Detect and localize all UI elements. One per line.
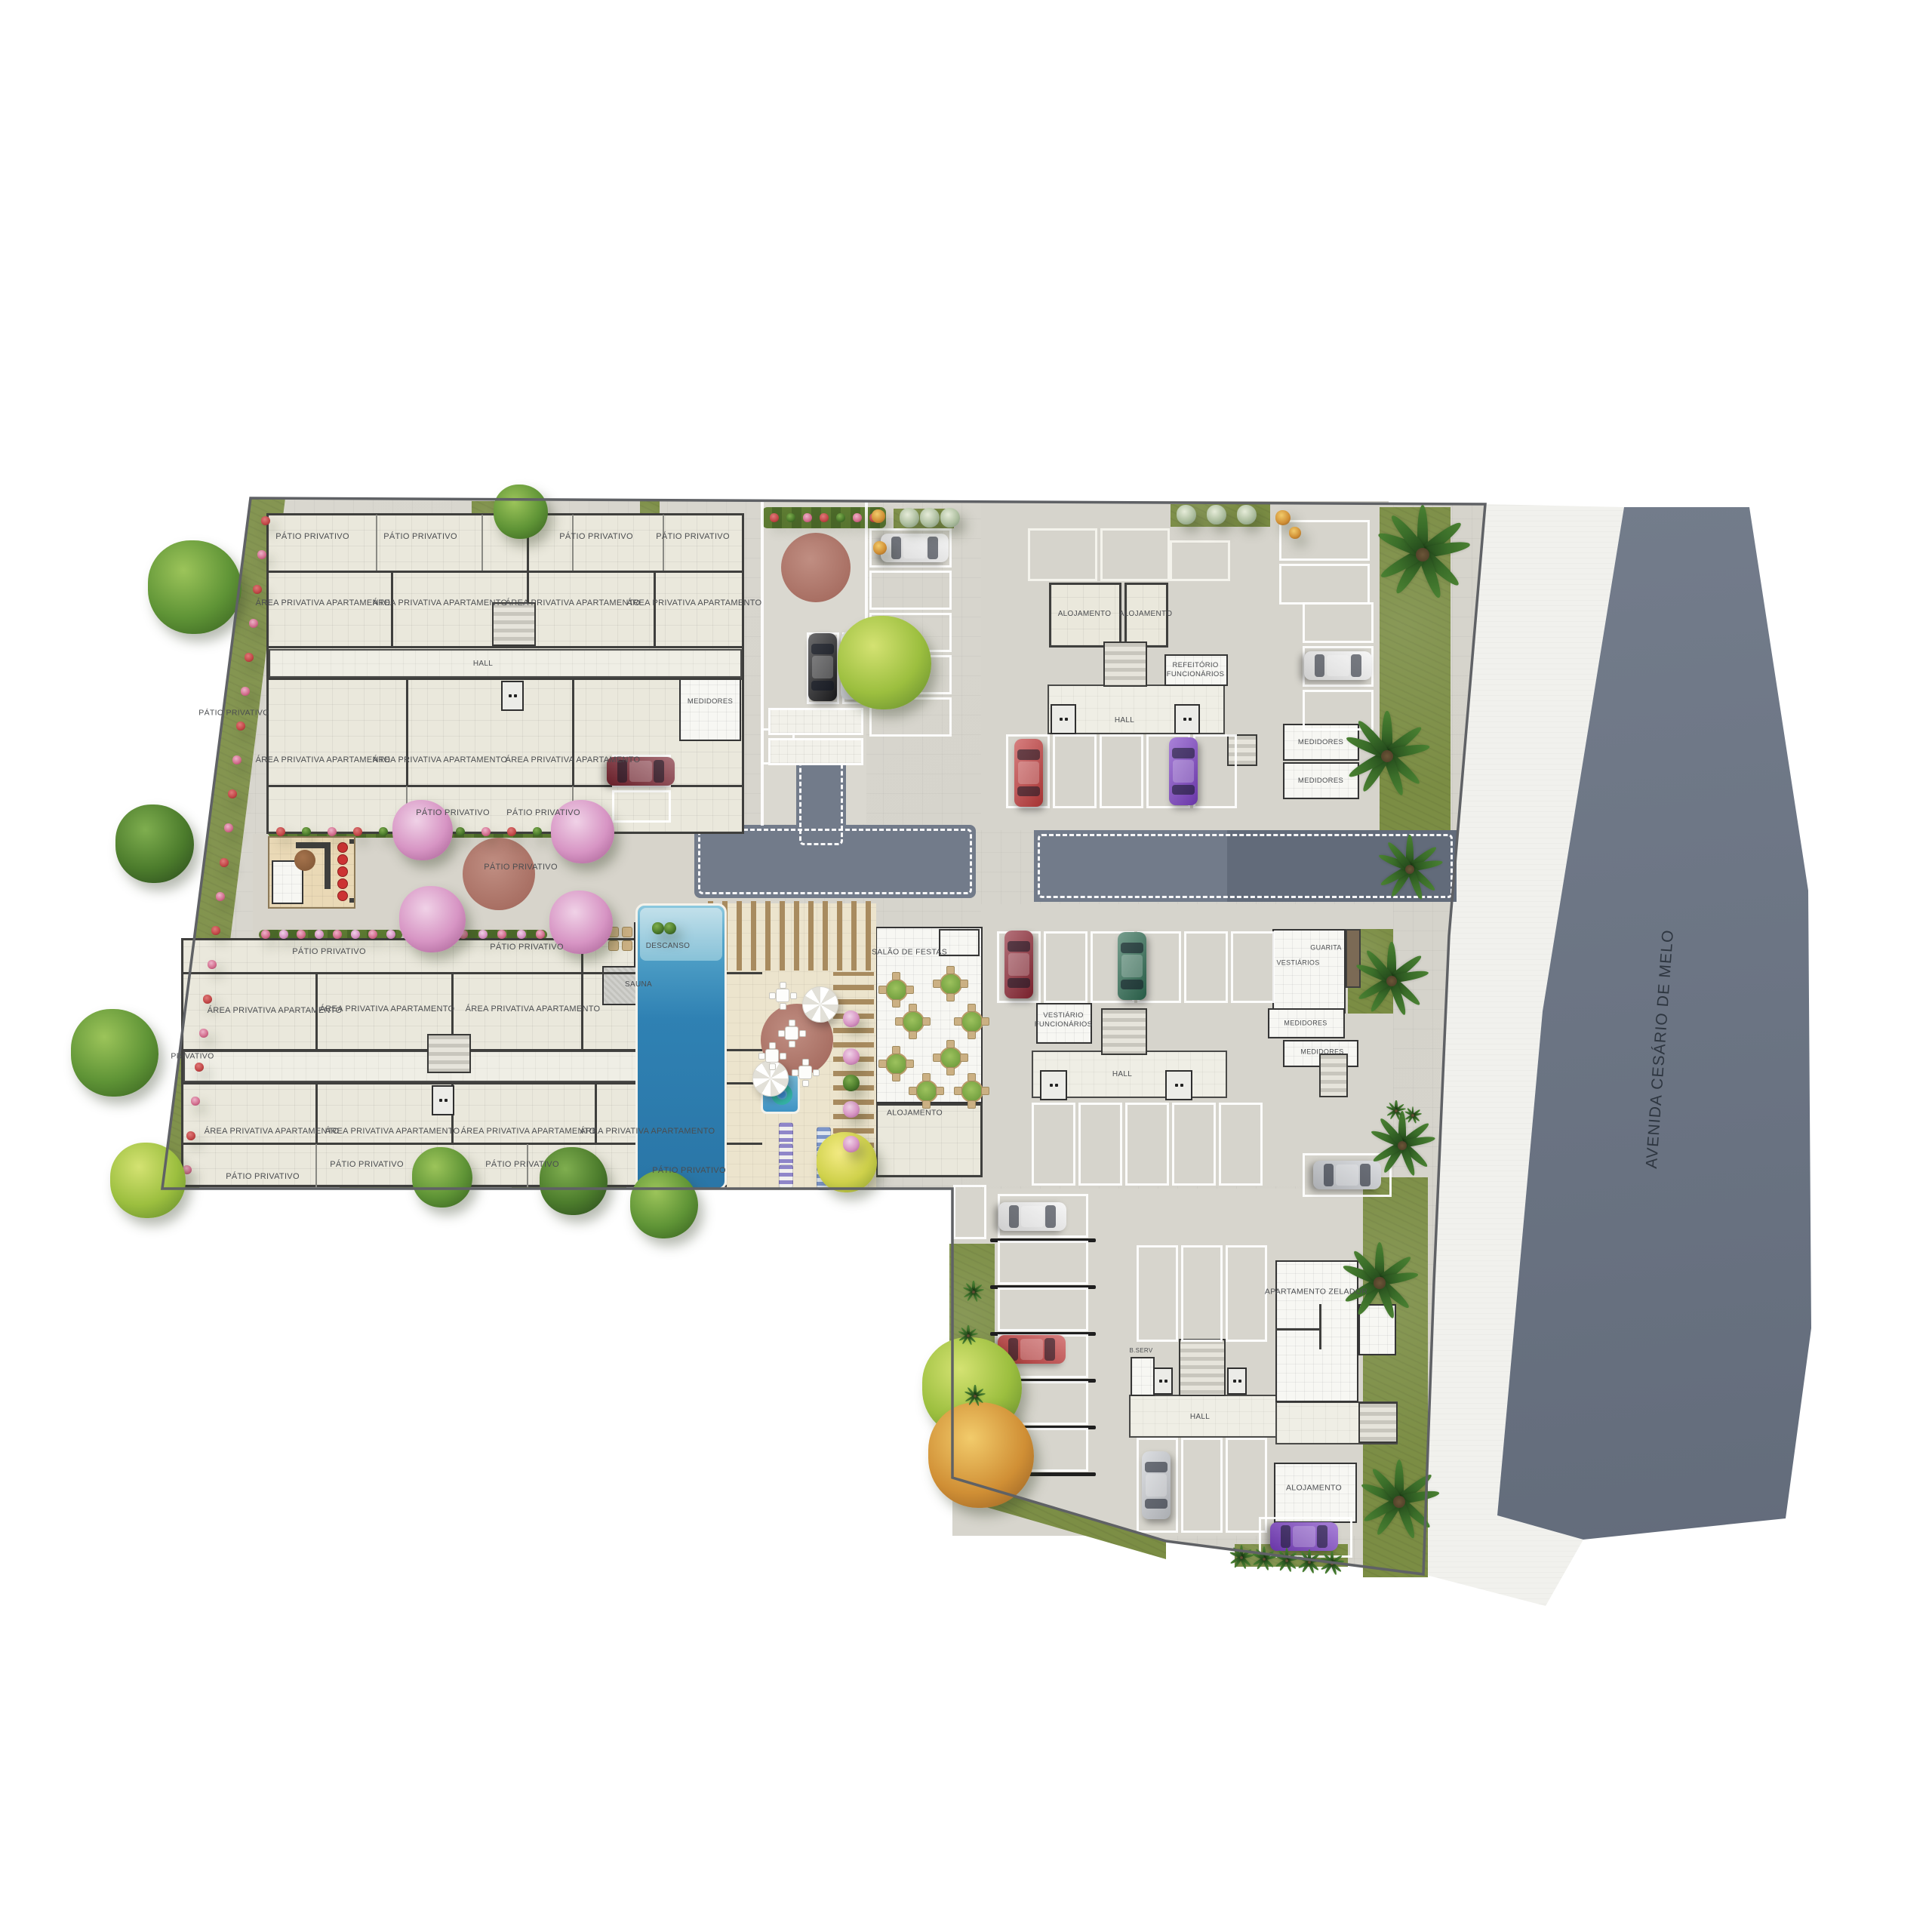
flower-bush — [276, 827, 285, 836]
tree — [900, 508, 919, 528]
flower-bush — [253, 585, 262, 594]
pool-chair — [789, 1020, 795, 1026]
palm-tree — [1373, 505, 1472, 605]
flower-bush — [261, 516, 270, 525]
room-label: PÁTIO PRIVATIVO — [484, 863, 558, 873]
bbq-grill — [294, 850, 315, 871]
flower-bush — [333, 930, 342, 939]
party-room-chair — [878, 986, 887, 994]
tree — [1275, 510, 1291, 525]
pool-umbrella — [802, 986, 838, 1023]
bbq-stool — [337, 878, 348, 889]
pool-chair — [778, 1030, 785, 1037]
car — [1118, 932, 1146, 1000]
flower-bush — [241, 687, 250, 696]
car-rf — [1173, 760, 1193, 783]
palm-tree — [1339, 1242, 1420, 1324]
room-label: PÁTIO PRIVATIVO — [275, 532, 349, 543]
room-label: VESTIÁRIOS — [1276, 958, 1319, 967]
tree — [540, 1147, 608, 1215]
tree — [148, 540, 241, 634]
parking-stall — [1279, 564, 1370, 605]
pool-beach-entry — [640, 908, 722, 961]
wall-segment — [406, 678, 408, 785]
elevator — [432, 1085, 454, 1115]
tree — [412, 1147, 472, 1207]
patio-chair — [622, 927, 632, 937]
tree — [1289, 527, 1301, 539]
sun-lounger — [779, 1164, 793, 1189]
car — [1014, 739, 1043, 807]
party-room-chair — [906, 1060, 914, 1068]
party-room-chair — [946, 966, 955, 974]
room-label: PÁTIO PRIVATIVO — [656, 532, 730, 543]
elevator — [1040, 1070, 1067, 1100]
palm-tree — [1274, 1548, 1300, 1574]
flower-bush — [379, 827, 388, 836]
wall-segment — [349, 839, 354, 844]
parking-stall — [1226, 1245, 1267, 1342]
car-rf — [1121, 955, 1142, 978]
parking-stall — [1181, 1245, 1223, 1342]
party-room-chair — [922, 1017, 931, 1026]
wall-segment — [572, 678, 574, 785]
palm-trunk — [1374, 1277, 1385, 1288]
tree — [940, 508, 960, 528]
room-label: PÁTIO PRIVATIVO — [416, 808, 490, 819]
room-label: SALÃO DE FESTAS — [872, 947, 947, 957]
flower-bush — [836, 513, 845, 522]
parking-stall — [998, 1287, 1088, 1331]
car — [1169, 737, 1198, 805]
staircase — [1319, 1054, 1348, 1097]
party-room-chair — [968, 1004, 976, 1012]
car-rf — [1018, 761, 1038, 785]
flower-bush — [820, 513, 829, 522]
party-room-chair — [922, 1100, 931, 1109]
parking-stall — [1193, 734, 1237, 808]
flower-bush — [853, 513, 862, 522]
staircase — [1179, 1339, 1226, 1396]
red-plaza-circle — [463, 838, 535, 910]
room-label: HALL — [1112, 1070, 1132, 1080]
party-room-chair — [878, 1060, 887, 1068]
parking-stall — [1181, 1438, 1223, 1533]
tree — [872, 509, 885, 523]
elevator — [1051, 704, 1076, 734]
palm-trunk — [1411, 1114, 1414, 1116]
room-label: PÁTIO PRIVATIVO — [292, 947, 366, 958]
car-w2 — [1172, 785, 1195, 795]
pool-chair — [780, 1053, 786, 1060]
parking-stall — [1028, 528, 1097, 581]
wall-segment — [266, 571, 744, 573]
room-label: PÁTIO PRIVATIVO — [383, 532, 457, 543]
room-label: ÁREA PRIVATIVA APARTAMENTO — [580, 1127, 715, 1137]
car-w1 — [928, 537, 938, 559]
parking-stall — [1137, 1245, 1178, 1342]
palm-tree — [958, 1325, 979, 1346]
flower-bush — [249, 619, 258, 628]
parking-stall — [1170, 540, 1230, 581]
car-rf — [1021, 1206, 1044, 1226]
car — [1270, 1522, 1338, 1551]
tree — [873, 541, 887, 555]
room-label: HALL — [473, 660, 493, 669]
palm-tree — [1319, 1551, 1345, 1577]
flower-bush — [517, 930, 526, 939]
flower-bush — [224, 823, 233, 832]
party-room-table — [940, 973, 962, 995]
car-w2 — [1009, 1205, 1019, 1228]
flower-bush — [507, 827, 516, 836]
tree — [928, 1402, 1034, 1508]
room-label: ALOJAMENTO — [1286, 1483, 1342, 1493]
palm-tree — [1375, 835, 1444, 904]
tree — [399, 886, 466, 952]
party-room-table — [961, 1011, 983, 1033]
flower-bush — [481, 827, 491, 836]
flower-bush — [302, 827, 311, 836]
parking-stall — [1100, 528, 1170, 581]
plaza-curb-line — [865, 501, 868, 635]
tree — [920, 508, 940, 528]
parking-stall — [869, 571, 952, 610]
parking-stall — [612, 790, 671, 823]
car-w2 — [1008, 978, 1030, 988]
tree — [494, 485, 548, 539]
tree — [630, 1171, 698, 1238]
party-room-chair — [968, 1100, 976, 1109]
pool-chair — [802, 1059, 809, 1066]
room-label: MEDIDORES — [688, 697, 733, 706]
room-label: PÁTIO PRIVATIVO — [226, 1172, 300, 1183]
car — [1142, 1451, 1171, 1519]
party-room-chair — [936, 1087, 944, 1095]
flower-bush — [478, 930, 488, 939]
flower-bush — [203, 995, 212, 1004]
car-w1 — [1121, 943, 1143, 953]
car-w2 — [891, 537, 901, 559]
car-rf — [1327, 655, 1350, 675]
elevator — [1174, 704, 1200, 734]
party-room-chair — [892, 1046, 900, 1054]
wall-segment-light — [376, 515, 377, 571]
party-room-chair — [892, 999, 900, 1008]
bbq-stool — [337, 842, 348, 853]
room-label: ÁREA PRIVATIVA APARTAMENTO — [506, 755, 641, 766]
bbq-stool — [337, 854, 348, 865]
car-w1 — [1045, 1205, 1056, 1228]
tree — [1177, 505, 1196, 525]
road-west-markings — [698, 829, 972, 894]
party-room-table — [902, 1011, 924, 1033]
parking-stall — [1032, 1103, 1075, 1186]
room-label: ÁREA PRIVATIVA APARTAMENTO — [325, 1127, 460, 1137]
pool-chair — [780, 982, 786, 989]
flower-bush — [245, 653, 254, 662]
party-room-chair — [981, 1087, 989, 1095]
car-w1 — [1044, 1338, 1055, 1361]
wall-segment-light — [481, 515, 483, 571]
wall-segment — [325, 842, 331, 889]
room-label: PÁTIO PRIVATIVO — [559, 532, 633, 543]
room-label: HALL — [1115, 716, 1134, 726]
parking-stall — [1303, 602, 1374, 643]
flower-bush — [803, 513, 812, 522]
palm-tree — [1229, 1545, 1254, 1571]
pool-chair — [780, 1003, 786, 1010]
room-label: MEDIDORES — [1298, 777, 1343, 786]
tree — [664, 922, 676, 934]
car — [1304, 651, 1372, 680]
car-rf — [1293, 1526, 1316, 1546]
wall-segment — [1319, 1304, 1321, 1349]
party-room-chair — [981, 1017, 989, 1026]
flower-bush — [199, 1029, 208, 1038]
patio-chair — [622, 940, 632, 951]
car-w2 — [1121, 980, 1143, 989]
elevator — [1165, 1070, 1192, 1100]
staircase — [1103, 641, 1147, 687]
party-room-chair — [892, 972, 900, 980]
tree — [1207, 505, 1226, 525]
parking-stall — [1044, 931, 1088, 1003]
room-label: HALL — [1190, 1413, 1210, 1423]
pool-table — [776, 989, 789, 1002]
utility-room — [1131, 1357, 1155, 1396]
flower-bush — [456, 827, 465, 836]
hall-corridor — [269, 649, 742, 678]
wall-segment — [349, 898, 354, 903]
pool-table — [785, 1026, 798, 1040]
elevator — [1227, 1367, 1247, 1395]
car-w1 — [1017, 749, 1040, 760]
car — [1004, 931, 1033, 998]
party-room-chair — [892, 1073, 900, 1081]
room-label: ÁREA PRIVATIVA APARTAMENTO — [461, 1127, 596, 1137]
party-room-chair — [968, 1031, 976, 1039]
pool-table — [798, 1066, 812, 1079]
flower-bush — [328, 827, 337, 836]
palm-tree — [1297, 1549, 1322, 1575]
room-label: ÁREA PRIVATIVA APARTAMENTO — [320, 1004, 455, 1015]
parking-stall — [768, 708, 863, 735]
room-label: REFEITÓRIO FUNCIONÁRIOS — [1167, 661, 1224, 679]
pool-chair — [792, 1069, 798, 1076]
flower-bush — [351, 930, 360, 939]
parking-stall — [1100, 734, 1143, 808]
staircase — [1101, 1008, 1147, 1055]
wall-segment — [266, 678, 744, 680]
parking-stall — [1172, 1103, 1216, 1186]
flower-bush — [216, 892, 225, 901]
room-label: PÁTIO PRIVATIVO — [330, 1160, 404, 1171]
bbq-stool — [337, 866, 348, 877]
palm-tree — [964, 1385, 986, 1407]
room-label: ÁREA PRIVATIVA APARTAMENTO — [373, 755, 508, 766]
party-room-chair — [909, 1004, 917, 1012]
car-w2 — [1145, 1499, 1168, 1509]
parking-stall — [1279, 520, 1370, 561]
flower-bush — [386, 930, 395, 939]
tree — [110, 1143, 186, 1218]
flower-bush — [786, 513, 795, 522]
party-room-chair — [909, 1087, 917, 1095]
room-label: SAUNA — [625, 980, 652, 990]
utility-room — [679, 678, 741, 741]
room-label: PÁTIO PRIVATIVO — [652, 1166, 726, 1177]
room-label: ÁREA PRIVATIVA APARTAMENTO — [256, 755, 391, 766]
party-room-chair — [960, 1054, 968, 1062]
plaza-curb-line — [761, 501, 764, 826]
party-room-chair — [933, 980, 941, 988]
wall-segment-light — [315, 1144, 317, 1187]
palm-tree — [1404, 1106, 1422, 1124]
staircase — [427, 1034, 471, 1073]
room-label: PÁTIO PRIVATIVO — [490, 943, 564, 953]
flower-bush — [279, 930, 288, 939]
patio-chair — [608, 940, 619, 951]
flower-bush — [353, 827, 362, 836]
pool-table — [765, 1049, 779, 1063]
room-label: VESTIÁRIO FUNCIONÁRIOS — [1035, 1011, 1092, 1029]
elevator — [1153, 1367, 1173, 1395]
room-label: PÁTIO PRIVATIVO — [198, 708, 269, 718]
tree — [843, 1136, 860, 1152]
car-rf — [1336, 1164, 1359, 1185]
party-room-chair — [968, 1073, 976, 1081]
flower-bush — [220, 858, 229, 867]
room-label: ALOJAMENTO — [1119, 610, 1173, 620]
room-label: ÁREA PRIVATIVA APARTAMENTO — [627, 598, 762, 609]
tree — [652, 922, 664, 934]
tree — [843, 1101, 860, 1118]
room-label: B.SERV — [1130, 1347, 1153, 1355]
party-room-chair — [946, 993, 955, 1001]
car-w1 — [654, 760, 664, 783]
palm-tree — [1251, 1546, 1277, 1572]
party-room-table — [885, 1053, 908, 1075]
car-w1 — [1008, 941, 1030, 952]
room-label: MEDIDORES — [1298, 738, 1343, 747]
palm-tree — [1357, 1460, 1441, 1544]
staircase — [1358, 1402, 1398, 1443]
room-label: ÁREA PRIVATIVA APARTAMENTO — [373, 598, 508, 609]
pool-chair — [802, 1080, 809, 1087]
car-w2 — [1281, 1525, 1291, 1548]
wall-segment — [266, 646, 744, 648]
room-label: APARTAMENTO ZELADOR — [1265, 1287, 1367, 1297]
flower-bush — [533, 827, 542, 836]
palm-trunk — [967, 1334, 970, 1337]
room-label: ALOJAMENTO — [887, 1108, 943, 1118]
wall-segment-light — [663, 515, 664, 571]
party-room-table — [940, 1047, 962, 1069]
party-room-chair — [906, 986, 914, 994]
party-room-chair — [909, 1031, 917, 1039]
tree — [1237, 505, 1257, 525]
tree — [843, 1048, 860, 1065]
room-label: ÁREA PRIVATIVA APARTAMENTO — [205, 1127, 340, 1137]
room-label: PRIVATIVO — [171, 1051, 214, 1061]
tree — [843, 1011, 860, 1027]
flower-bush — [536, 930, 545, 939]
wall-segment — [266, 785, 744, 787]
room-label: GUARITA — [1310, 943, 1341, 952]
car-rf — [1008, 953, 1029, 977]
palm-tree — [1342, 711, 1432, 801]
pool-chair — [799, 1030, 806, 1037]
flower-bush — [261, 930, 270, 939]
pool-chair — [769, 1063, 776, 1070]
palm-trunk — [1393, 1496, 1405, 1508]
palm-tree — [962, 1281, 985, 1303]
flower-bush — [315, 930, 324, 939]
flower-bush — [232, 755, 241, 764]
room-label: ÁREA PRIVATIVA APARTAMENTO — [466, 1004, 601, 1015]
party-room-chair — [946, 1040, 955, 1048]
room-label: ÁREA PRIVATIVA APARTAMENTO — [506, 598, 641, 609]
flower-bush — [770, 513, 779, 522]
palm-tree — [1352, 942, 1431, 1020]
parking-stall — [768, 738, 863, 765]
flower-bush — [257, 550, 266, 559]
room-label: PÁTIO PRIVATIVO — [506, 808, 580, 819]
car-w1 — [811, 644, 834, 654]
car-rf — [1146, 1474, 1166, 1497]
parking-stall — [1125, 1103, 1169, 1186]
elevator — [501, 681, 524, 711]
bbq-stool — [337, 891, 348, 901]
party-room-chair — [946, 1067, 955, 1075]
pool-chair — [790, 992, 797, 999]
parking-stall — [1184, 931, 1228, 1003]
parking-stall — [1078, 1103, 1122, 1186]
car-w1 — [1172, 748, 1195, 758]
car-rf — [812, 656, 832, 679]
room-label: PÁTIO PRIVATIVO — [485, 1160, 559, 1171]
room-label: MEDIDORES — [1284, 1019, 1327, 1027]
car-rf — [903, 537, 927, 558]
pool-chair — [758, 1053, 765, 1060]
party-room-chair — [933, 1054, 941, 1062]
parking-stall — [998, 1241, 1088, 1284]
parking-stall — [1231, 931, 1275, 1003]
party-room-chair — [895, 1017, 903, 1026]
tree — [838, 616, 931, 709]
room-label: DESCANSO — [646, 942, 691, 952]
party-room-table — [961, 1080, 983, 1103]
room-label: ÁREA PRIVATIVA APARTAMENTO — [256, 598, 391, 609]
parking-stall — [1219, 1103, 1263, 1186]
car — [881, 534, 949, 562]
car-w2 — [1324, 1164, 1334, 1186]
wall-segment — [1275, 1328, 1321, 1331]
tree — [71, 1009, 158, 1097]
room-label: ALOJAMENTO — [1058, 610, 1112, 620]
tree — [843, 1075, 860, 1091]
party-room-table — [885, 979, 908, 1001]
tree — [115, 804, 194, 883]
car-w2 — [1017, 786, 1040, 796]
wall-segment-light — [572, 515, 574, 571]
party-room-table — [915, 1080, 938, 1103]
pool-chair — [789, 1041, 795, 1048]
car-w2 — [1315, 654, 1324, 677]
car-w2 — [811, 681, 834, 691]
party-room-chair — [954, 1017, 962, 1026]
